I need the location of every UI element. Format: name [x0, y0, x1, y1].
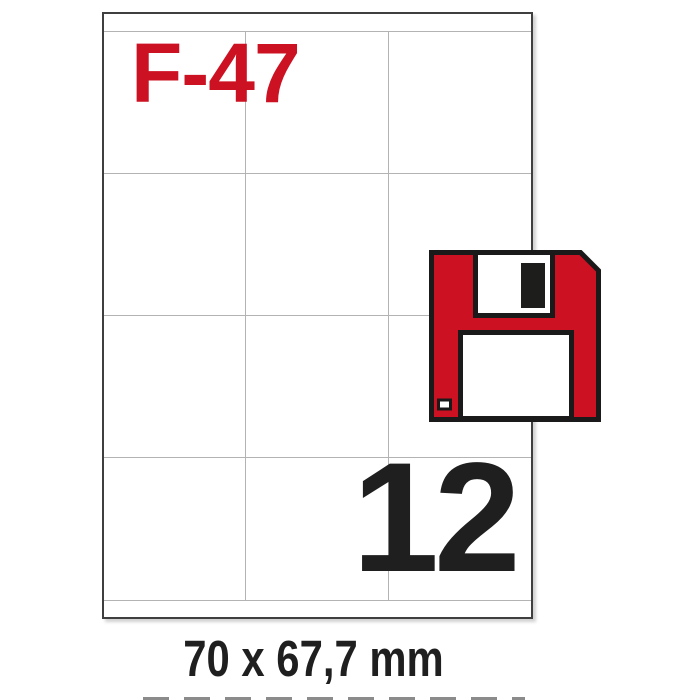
label-cell: [246, 174, 388, 316]
product-code: F-47: [131, 31, 300, 115]
floppy-write-protect-tab: [439, 400, 451, 409]
label-cell: [104, 458, 246, 600]
floppy-disk-icon: [429, 250, 601, 422]
floppy-shutter-slot: [521, 263, 545, 308]
labels-per-sheet-count: 12: [346, 440, 522, 596]
label-cell: [104, 316, 246, 458]
label-cell: [389, 32, 531, 174]
label-cell: [104, 174, 246, 316]
floppy-label-area: [461, 333, 572, 419]
product-image: F-47 12 70 x 67,7 mm: [0, 0, 700, 700]
label-dimensions-text: 70 x 67,7 mm: [137, 633, 490, 684]
